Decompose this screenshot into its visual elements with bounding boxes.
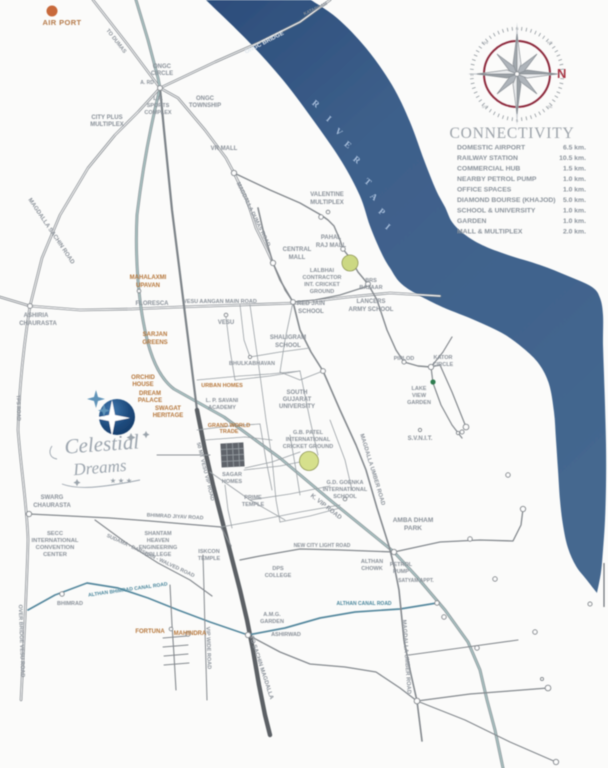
svg-text:S.V.N.I.T.: S.V.N.I.T. <box>408 436 433 442</box>
svg-text:NEARBY PETROL PUMP: NEARBY PETROL PUMP <box>457 176 537 183</box>
svg-text:A. RD: A. RD <box>140 80 154 86</box>
svg-text:SWAGAT: SWAGAT <box>155 406 181 412</box>
svg-text:GREENS: GREENS <box>142 340 167 346</box>
svg-text:2.0 km.: 2.0 km. <box>563 229 586 236</box>
svg-text:W: W <box>470 72 474 77</box>
svg-text:HEAVEN: HEAVEN <box>147 538 170 544</box>
svg-text:MAHINDRA: MAHINDRA <box>174 631 207 637</box>
svg-text:1.0 km.: 1.0 km. <box>563 208 586 215</box>
svg-text:ACADEMY: ACADEMY <box>208 405 236 411</box>
svg-text:BRS: BRS <box>365 278 377 284</box>
svg-text:SCHOOL: SCHOOL <box>275 343 301 349</box>
svg-text:ONGC: ONGC <box>196 96 215 102</box>
svg-text:GARDEN: GARDEN <box>260 619 284 625</box>
svg-text:ASHIRIA: ASHIRIA <box>24 313 49 319</box>
svg-text:GARDEN: GARDEN <box>407 400 431 406</box>
svg-text:SW: SW <box>482 104 489 109</box>
svg-text:RED JAIN: RED JAIN <box>297 301 325 307</box>
svg-text:SCHOOL: SCHOOL <box>298 309 324 315</box>
svg-text:CIRCLE: CIRCLE <box>433 362 454 368</box>
svg-text:ISKCON: ISKCON <box>198 549 219 555</box>
svg-text:SATYAM APPT.: SATYAM APPT. <box>398 578 434 584</box>
svg-text:LANCERS: LANCERS <box>356 299 385 305</box>
svg-text:VALENTINE: VALENTINE <box>310 192 344 198</box>
svg-text:BHIMRAD: BHIMRAD <box>57 601 83 607</box>
svg-text:SARJAN: SARJAN <box>143 332 168 338</box>
svg-text:SPORTS: SPORTS <box>147 103 170 109</box>
svg-text:PAHAL: PAHAL <box>321 235 342 241</box>
svg-text:L. P. SAVANI: L. P. SAVANI <box>206 398 239 404</box>
svg-text:RAILWAY STATION: RAILWAY STATION <box>457 155 518 162</box>
svg-text:CONTRACTOR: CONTRACTOR <box>302 275 341 281</box>
svg-text:A.M.G.: A.M.G. <box>263 612 281 618</box>
svg-text:CIRCLE: CIRCLE <box>151 71 173 77</box>
svg-text:TPS ROAD: TPS ROAD <box>15 395 22 421</box>
svg-text:SAGAR: SAGAR <box>222 472 242 478</box>
svg-text:N: N <box>557 66 566 81</box>
svg-text:NW: NW <box>482 40 489 45</box>
svg-text:CITY PLUS: CITY PLUS <box>91 115 122 121</box>
svg-text:S: S <box>516 118 519 123</box>
svg-text:UNIVERSITY: UNIVERSITY <box>279 404 315 410</box>
svg-text:NEW CITY LIGHT ROAD: NEW CITY LIGHT ROAD <box>294 543 351 549</box>
svg-text:AMBA DHAM: AMBA DHAM <box>393 517 434 524</box>
svg-text:INTERNATIONAL: INTERNATIONAL <box>323 487 368 493</box>
svg-text:TEMPLE: TEMPLE <box>242 502 265 508</box>
svg-text:SHANTAM: SHANTAM <box>144 531 172 537</box>
svg-text:CHAURASTA: CHAURASTA <box>19 321 57 327</box>
svg-text:MALL: MALL <box>289 255 306 261</box>
svg-text:HERITAGE: HERITAGE <box>153 413 184 419</box>
svg-text:SECC: SECC <box>47 531 64 537</box>
svg-text:5.0 km.: 5.0 km. <box>563 197 586 204</box>
svg-text:ONGC: ONGC <box>153 64 172 70</box>
svg-text:FLORESCA: FLORESCA <box>136 301 170 307</box>
svg-text:CHAURASTA: CHAURASTA <box>33 503 71 509</box>
svg-text:INT. CRICKET: INT. CRICKET <box>304 282 340 288</box>
svg-text:CENTER: CENTER <box>43 552 68 558</box>
svg-text:GROUND: GROUND <box>310 289 334 295</box>
svg-text:TRADE: TRADE <box>220 429 239 435</box>
svg-text:ALTHAN CANAL ROAD: ALTHAN CANAL ROAD <box>336 601 391 607</box>
svg-text:VESU: VESU <box>218 320 234 326</box>
svg-text:UPAVAN: UPAVAN <box>136 283 160 289</box>
svg-text:VIEW: VIEW <box>412 393 427 399</box>
svg-text:SOUTH: SOUTH <box>287 390 308 396</box>
svg-text:BAZAAR: BAZAAR <box>359 285 382 291</box>
svg-text:DREAM: DREAM <box>139 391 161 397</box>
svg-text:10.5 km.: 10.5 km. <box>559 155 586 162</box>
svg-text:DIAMOND BOURSE (KHAJOD): DIAMOND BOURSE (KHAJOD) <box>457 197 556 204</box>
svg-text:CENTRAL: CENTRAL <box>283 247 312 253</box>
svg-text:FORTUNA: FORTUNA <box>135 629 165 635</box>
svg-text:SCHOOL: SCHOOL <box>333 494 357 500</box>
svg-text:COMPLEX: COMPLEX <box>144 110 172 116</box>
svg-text:OFFICE SPACES: OFFICE SPACES <box>457 187 512 194</box>
svg-text:G.B. PATEL: G.B. PATEL <box>293 430 324 436</box>
svg-text:PETROL: PETROL <box>390 562 413 568</box>
svg-text:ORCHID: ORCHID <box>131 375 155 381</box>
svg-text:SCHOOL & UNIVERSITY: SCHOOL & UNIVERSITY <box>457 208 536 215</box>
svg-text:KATOR: KATOR <box>433 355 452 361</box>
svg-text:PARK: PARK <box>404 525 422 532</box>
svg-text:ALTHAN: ALTHAN <box>361 559 383 565</box>
svg-text:LAKE: LAKE <box>412 386 427 392</box>
svg-text:TOWNSHIP: TOWNSHIP <box>189 103 221 109</box>
svg-text:INTERNATIONAL: INTERNATIONAL <box>32 538 79 544</box>
svg-text:G.D. GOENKA: G.D. GOENKA <box>327 480 364 486</box>
svg-text:MALL & MULTIPLEX: MALL & MULTIPLEX <box>457 229 523 236</box>
svg-text:INTERNATIONAL: INTERNATIONAL <box>286 437 331 443</box>
svg-text:COLLEGE: COLLEGE <box>265 573 292 579</box>
svg-text:DPS: DPS <box>272 566 284 572</box>
svg-text:N: N <box>516 26 519 31</box>
svg-text:VR MALL: VR MALL <box>211 146 238 152</box>
svg-text:6.5 km.: 6.5 km. <box>563 145 586 152</box>
svg-text:GUJARAT: GUJARAT <box>283 397 312 403</box>
svg-text:BHULKABHAVAN: BHULKABHAVAN <box>229 361 275 367</box>
svg-text:SWARG: SWARG <box>41 495 64 501</box>
svg-text:DOMESTIC AIRPORT: DOMESTIC AIRPORT <box>457 145 526 152</box>
svg-text:ASHIRWAD: ASHIRWAD <box>271 632 301 638</box>
svg-text:1.5 km.: 1.5 km. <box>563 166 586 173</box>
svg-text:1.0 km.: 1.0 km. <box>563 176 586 183</box>
svg-text:TEMPLE: TEMPLE <box>198 556 221 562</box>
svg-text:PALACE: PALACE <box>138 398 162 404</box>
svg-text:MULTIPLEX: MULTIPLEX <box>310 200 344 206</box>
svg-text:URBAN HOMES: URBAN HOMES <box>201 383 243 389</box>
svg-text:HOMES: HOMES <box>222 479 243 485</box>
svg-text:PRIME: PRIME <box>244 495 262 501</box>
svg-text:GARDEN: GARDEN <box>457 218 487 225</box>
svg-text:COMMERCIAL HUB: COMMERCIAL HUB <box>457 166 520 173</box>
svg-text:ARMY SCHOOL: ARMY SCHOOL <box>349 307 394 313</box>
svg-text:PUMP: PUMP <box>393 569 409 575</box>
svg-text:NE: NE <box>547 40 553 45</box>
svg-text:MULTIPLEX: MULTIPLEX <box>90 122 124 128</box>
svg-text:1.0 km.: 1.0 km. <box>563 187 586 194</box>
svg-text:CRICKET GROUND: CRICKET GROUND <box>283 444 333 450</box>
svg-text:SHALIGRAM: SHALIGRAM <box>270 335 306 341</box>
svg-text:L.P.: L.P. <box>153 96 163 102</box>
svg-text:1.0 km.: 1.0 km. <box>563 218 586 225</box>
svg-text:SE: SE <box>547 104 553 109</box>
svg-text:CHOWK: CHOWK <box>361 566 382 572</box>
svg-text:★ ★ ★: ★ ★ ★ <box>110 477 132 485</box>
svg-text:VESU AANGAN MAIN ROAD: VESU AANGAN MAIN ROAD <box>183 299 257 305</box>
svg-text:CONNECTIVITY: CONNECTIVITY <box>450 125 575 142</box>
svg-text:RAJ MALL: RAJ MALL <box>316 243 347 249</box>
svg-text:CONVENTION: CONVENTION <box>36 545 75 551</box>
svg-text:PIPLOD: PIPLOD <box>394 356 415 362</box>
svg-text:AIR PORT: AIR PORT <box>42 18 81 27</box>
svg-text:HOUSE: HOUSE <box>132 382 153 388</box>
svg-text:MAHALAXMI: MAHALAXMI <box>130 275 167 281</box>
svg-text:LALBHAI: LALBHAI <box>310 268 335 274</box>
